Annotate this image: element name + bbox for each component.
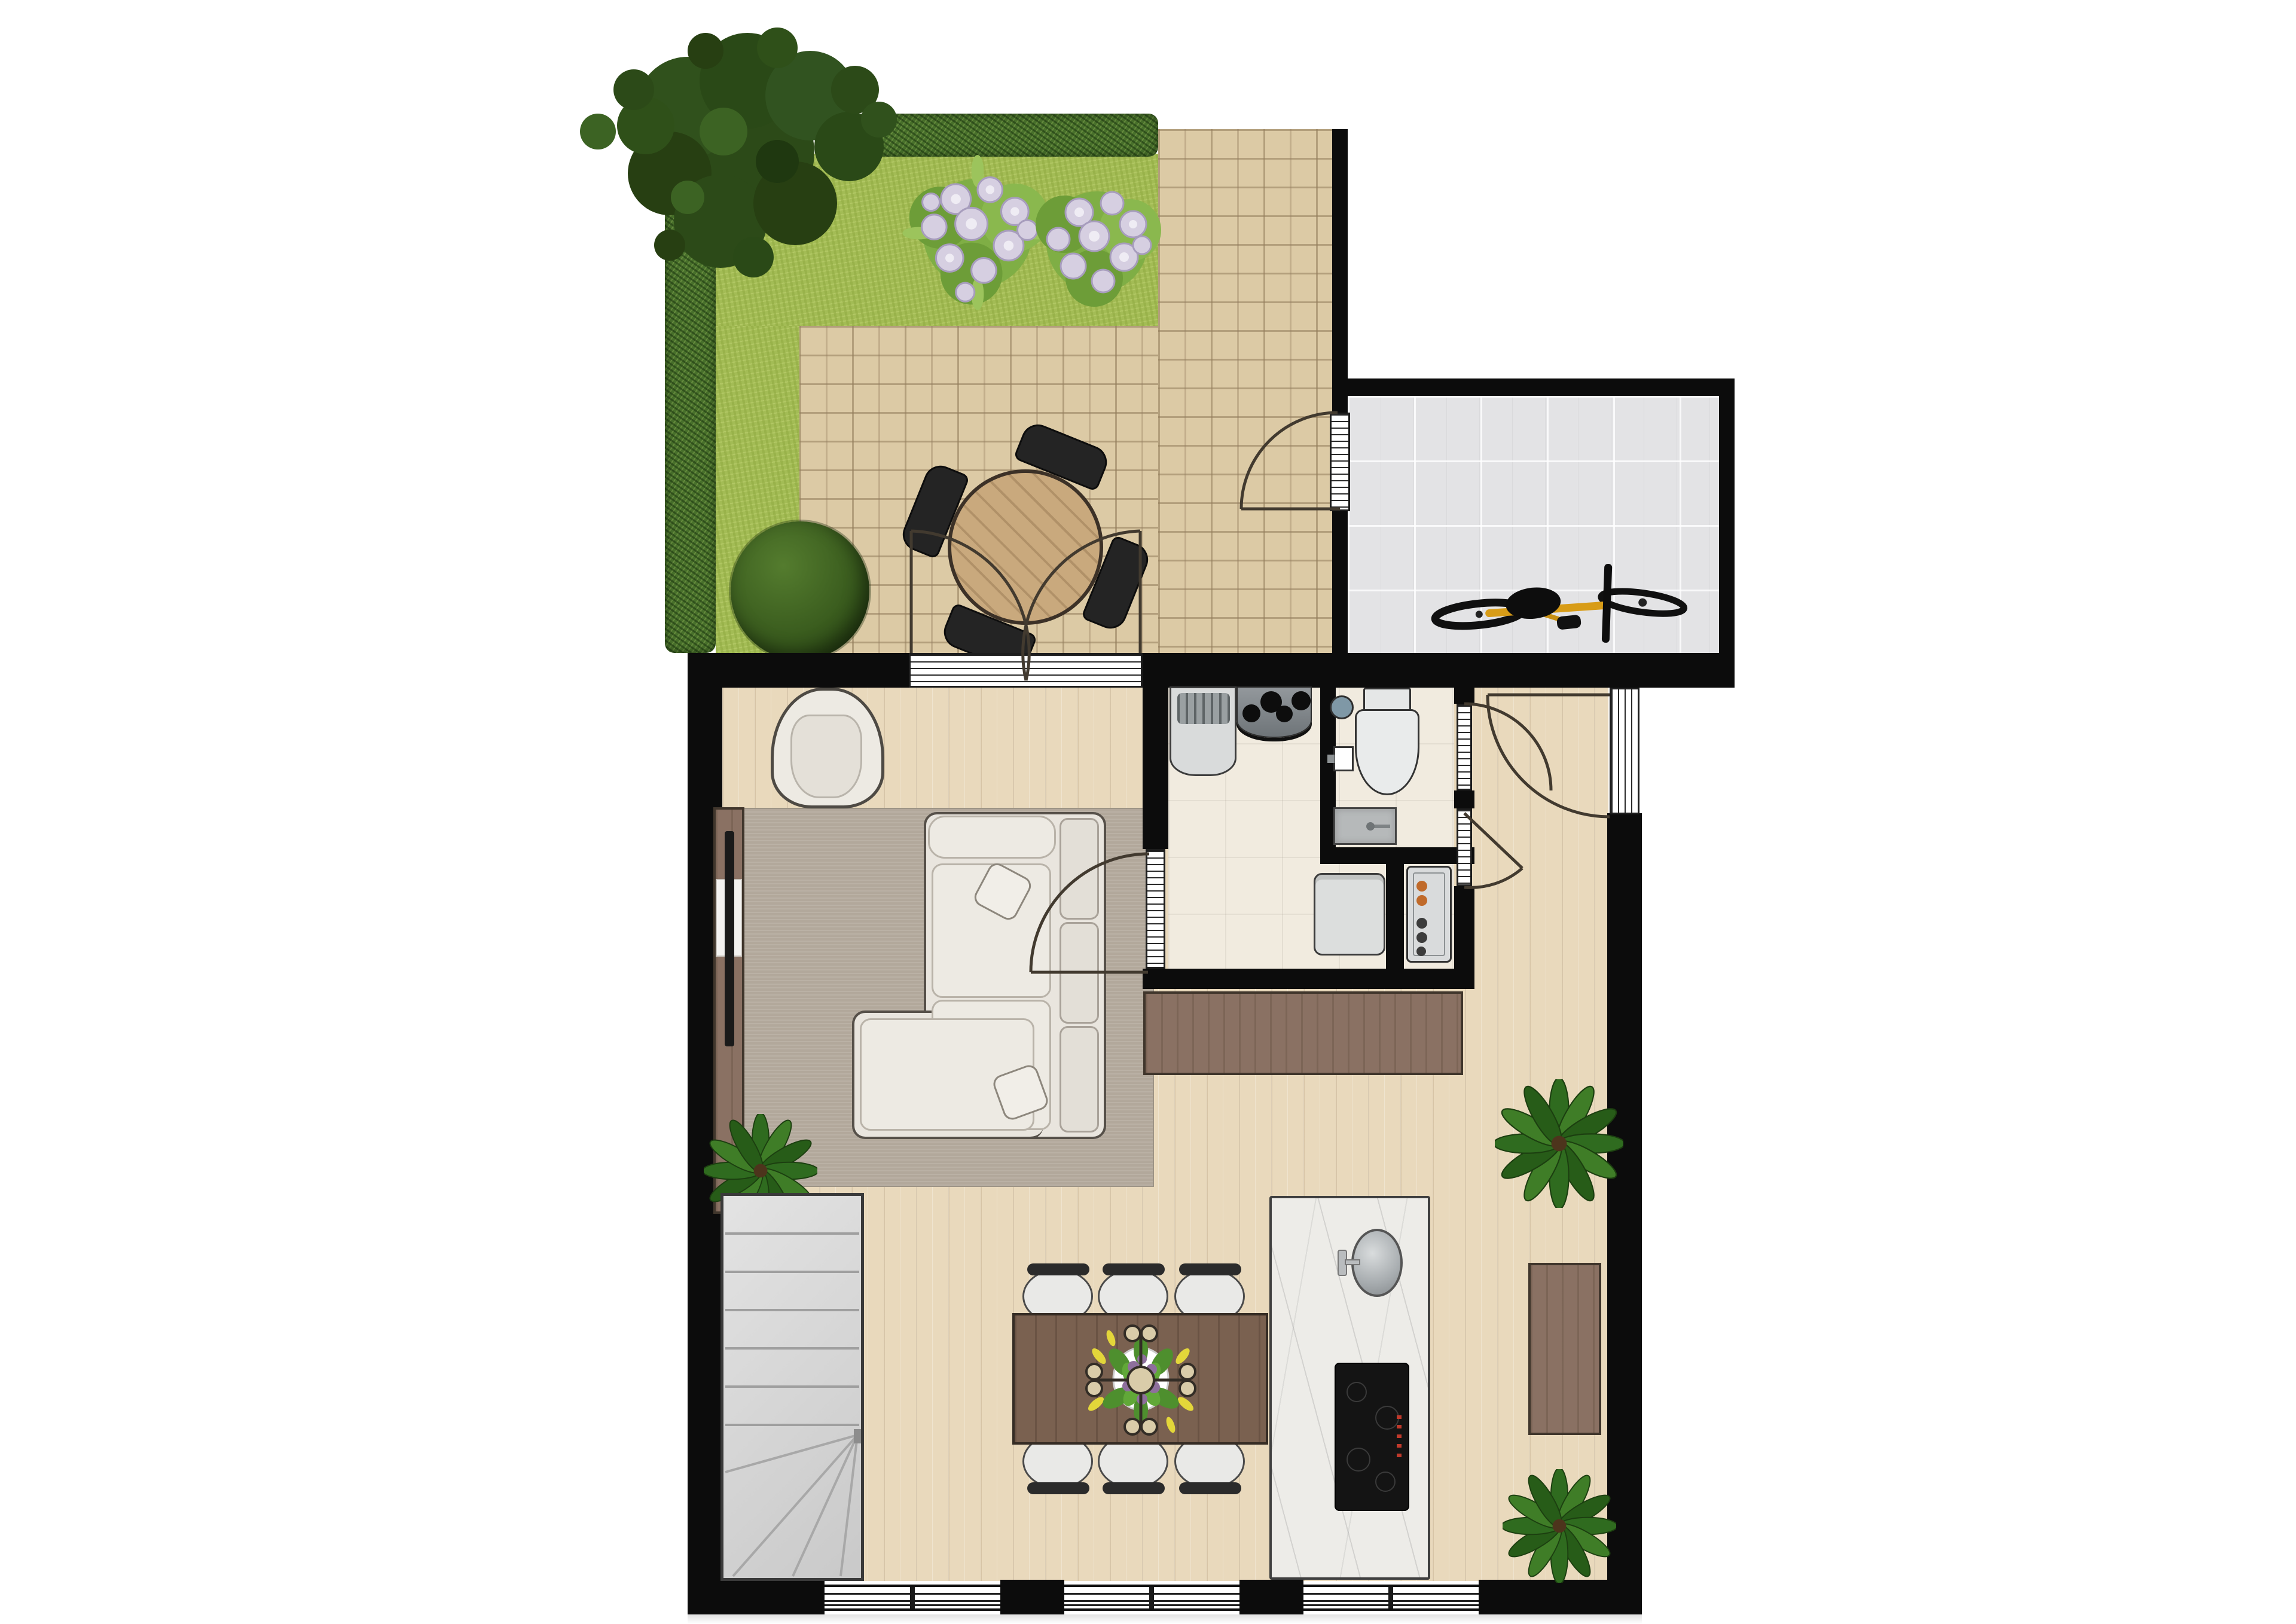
french-left-arc xyxy=(911,531,1029,680)
bathroom-door-arc xyxy=(1464,704,1551,790)
utility-door-arc xyxy=(1031,854,1149,972)
closet-door-arc xyxy=(1464,868,1522,887)
french-right-arc xyxy=(1023,531,1140,680)
floor-plan xyxy=(0,0,2296,1624)
garage-door-arc xyxy=(1241,413,1338,509)
closet-door-leaf xyxy=(1464,813,1522,868)
door-swing-overlay xyxy=(0,0,2296,1624)
